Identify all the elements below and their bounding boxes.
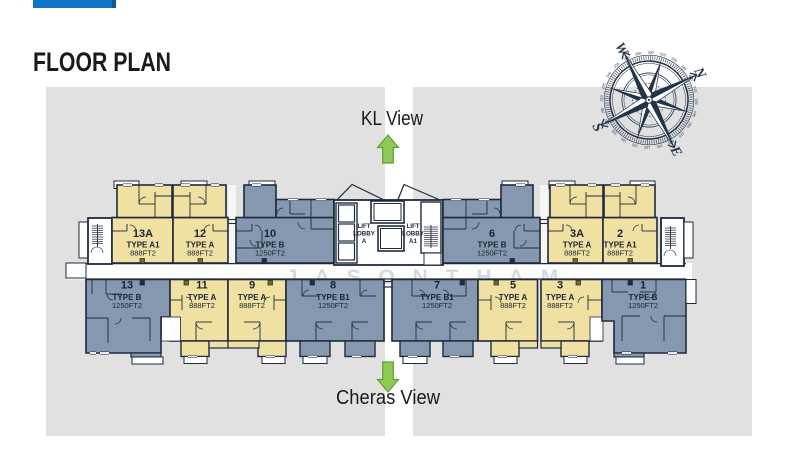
svg-text:210: 210 (600, 95, 604, 101)
svg-text:6: 6 (489, 228, 495, 240)
svg-text:8: 8 (330, 280, 336, 292)
svg-text:12: 12 (194, 228, 206, 240)
svg-text:1250FT2: 1250FT2 (422, 301, 452, 310)
svg-text:LOBBY: LOBBY (353, 231, 376, 238)
svg-text:11: 11 (196, 280, 208, 292)
svg-text:13A: 13A (133, 228, 153, 240)
svg-text:7: 7 (434, 280, 440, 292)
svg-text:2: 2 (617, 228, 623, 240)
svg-text:FLOOR PLAN: FLOOR PLAN (33, 47, 171, 77)
svg-text:3: 3 (557, 280, 563, 292)
svg-text:LOBBY: LOBBY (402, 231, 425, 238)
svg-text:1250FT2: 1250FT2 (628, 301, 658, 310)
svg-text:5: 5 (510, 280, 516, 292)
svg-text:1250FT2: 1250FT2 (318, 301, 348, 310)
svg-text:3A: 3A (570, 228, 584, 240)
svg-text:1250FT2: 1250FT2 (477, 249, 507, 258)
svg-text:120: 120 (644, 145, 650, 149)
svg-text:13: 13 (121, 280, 133, 292)
svg-text:888FT2: 888FT2 (500, 301, 526, 310)
svg-text:Cheras View: Cheras View (336, 387, 440, 409)
svg-text:888FT2: 888FT2 (239, 301, 265, 310)
svg-text:A: A (362, 238, 367, 245)
svg-text:A1: A1 (409, 238, 417, 245)
svg-text:888FT2: 888FT2 (564, 249, 590, 258)
svg-text:300: 300 (648, 51, 654, 55)
svg-text:888FT2: 888FT2 (187, 249, 213, 258)
svg-text:888FT2: 888FT2 (189, 301, 215, 310)
svg-text:888FT2: 888FT2 (607, 249, 633, 258)
svg-text:1250FT2: 1250FT2 (255, 249, 285, 258)
svg-text:1: 1 (640, 280, 646, 292)
svg-text:888FT2: 888FT2 (547, 301, 573, 310)
svg-text:030: 030 (694, 99, 698, 105)
svg-text:KL View: KL View (361, 108, 423, 130)
svg-text:888FT2: 888FT2 (130, 249, 156, 258)
svg-text:LIFT: LIFT (406, 223, 419, 230)
svg-text:LIFT: LIFT (357, 223, 370, 230)
svg-text:10: 10 (264, 228, 276, 240)
svg-text:1250FT2: 1250FT2 (112, 301, 142, 310)
svg-text:9: 9 (249, 280, 255, 292)
